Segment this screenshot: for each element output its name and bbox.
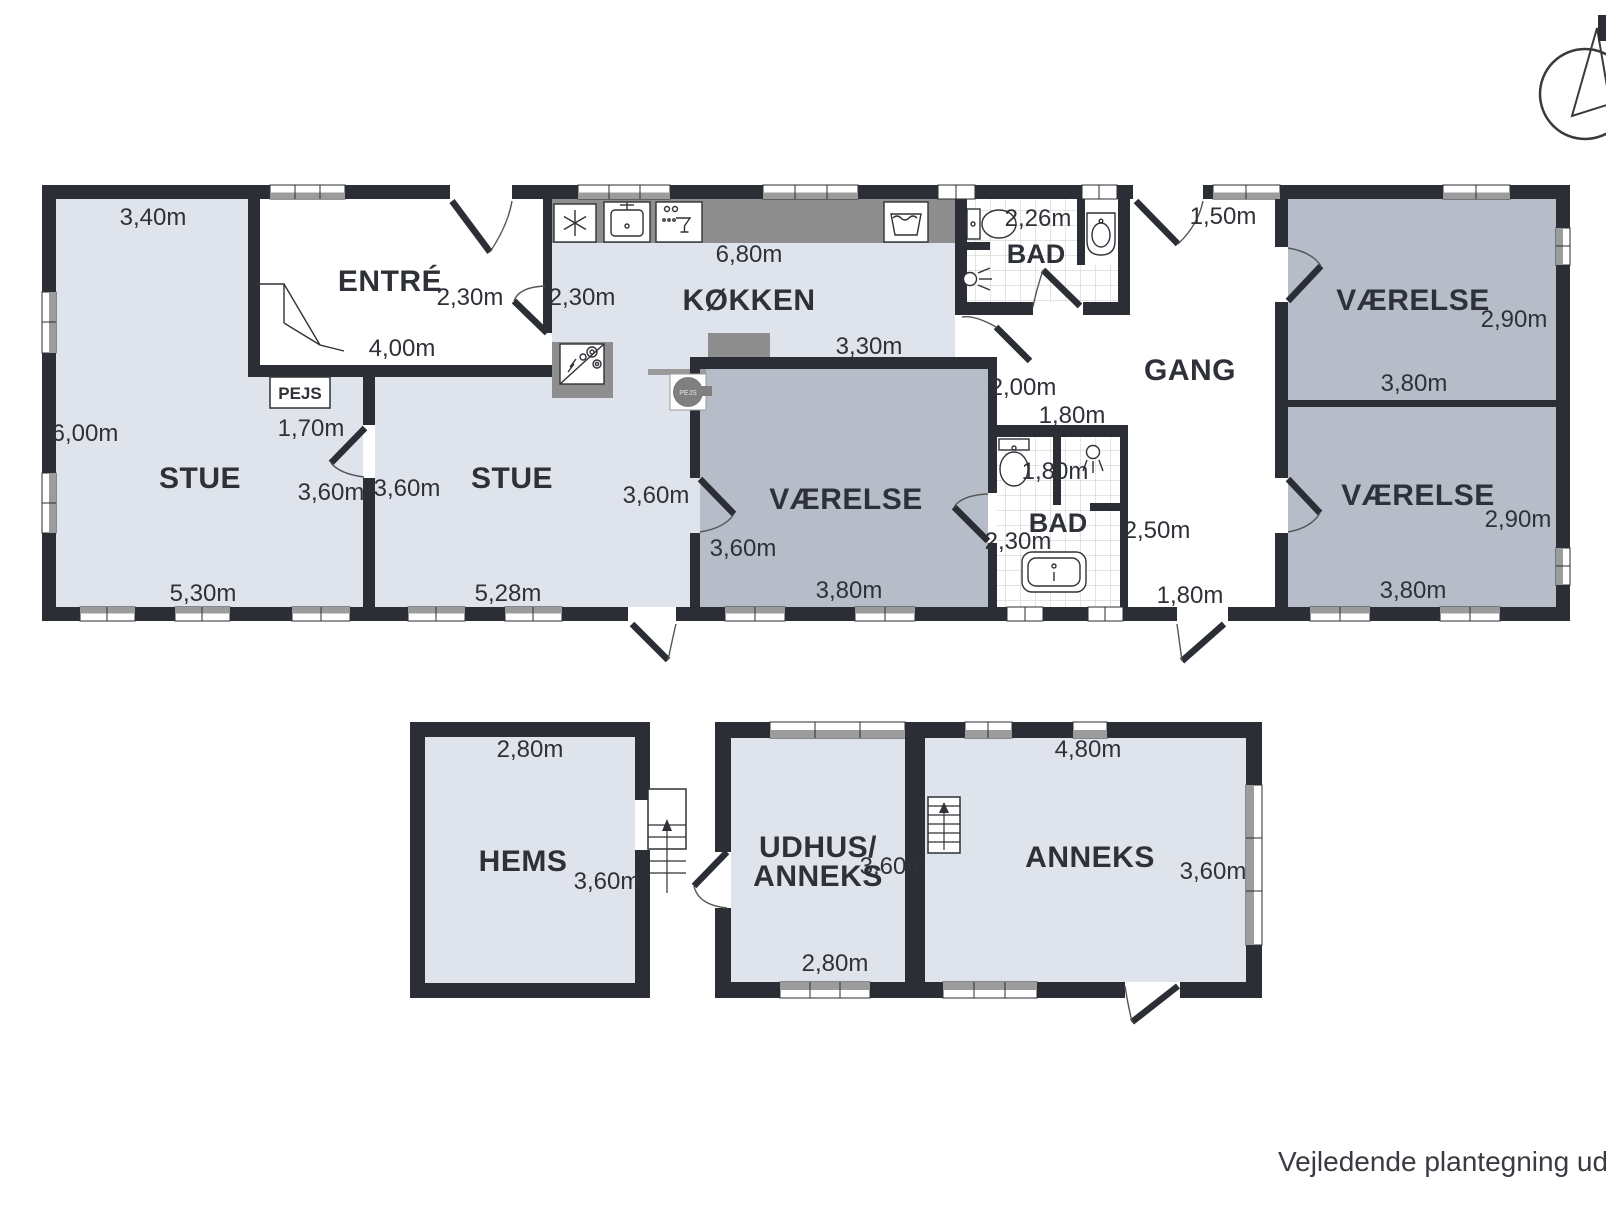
label-bad-mid-inner: 1,80m [1022,458,1089,485]
compass-icon [1540,15,1606,139]
label-anneks-top: 4,80m [1055,736,1122,763]
label-gang-door-bottom: 1,80m [1157,582,1224,609]
hems-stairs-icon [648,789,686,893]
label-vaerelse-mid-door-in: 3,60m [710,535,777,562]
label-stue-right-bottom: 5,28m [475,580,542,607]
label-gang-name: GANG [1144,354,1236,387]
bathtub-icon [1022,552,1086,592]
label-hems-name: HEMS [479,845,568,878]
label-bad-top-name: BAD [1007,239,1066,269]
label-stue-left-bottom: 5,30m [170,580,237,607]
label-kokken-name: KØKKEN [682,284,815,317]
label-stue-right-door: 3,60m [374,475,441,502]
freezer-icon [554,204,596,242]
label-stue-left-left: 6,00m [52,420,119,447]
label-entre-bottom: 4,00m [369,335,436,362]
label-vaerelse-se-bottom: 3,80m [1380,577,1447,604]
label-entre-name: ENTRÉ [338,264,442,298]
main-building: PEJS [42,185,1570,661]
udhus-anneks-building: UDHUS/ ANNEKS 3,60m 2,80m 4,80m ANNEKS 3… [694,722,1262,1022]
label-kokken-top: 6,80m [716,241,783,268]
dishwasher-icon [656,202,702,242]
label-stue-right-name: STUE [471,462,553,495]
bathroom-sink-top-icon [1087,213,1115,255]
label-gang-door-top: 1,50m [1190,203,1257,230]
kitchen-sink-icon [604,202,650,242]
label-vaerelse-ne-right: 2,90m [1481,306,1548,333]
label-pejs: PEJS [278,384,321,403]
label-kokken-bottom: 3,30m [836,333,903,360]
label-anneks-right: 3,60m [1180,858,1247,885]
wood-stove-icon: PEJS [670,374,712,410]
hems-building: 2,80m HEMS 3,60m [410,722,686,998]
label-vaerelse-se-right: 2,90m [1485,506,1552,533]
label-stue-left-door: 3,60m [298,479,365,506]
label-udhus-bottom: 2,80m [802,950,869,977]
floorplan-canvas: PEJS [0,0,1606,1205]
label-entre-door: 2,30m [437,284,504,311]
disclaimer-text: Vejledende plantegning uden ans [1278,1146,1606,1177]
label-stue-left-top: 3,40m [120,204,187,231]
compass-north-glyph [1598,15,1606,41]
label-bad-mid-right: 2,50m [1124,517,1191,544]
label-hems-top: 2,80m [497,736,564,763]
floorplan-svg: PEJS [0,0,1606,1205]
label-anneks-name: ANNEKS [1025,841,1155,874]
label-gang-opening: 2,00m [990,374,1057,401]
label-hems-right: 3,60m [574,868,641,895]
label-stue-left-name: STUE [159,462,241,495]
label-vaerelse-se-name: VÆRELSE [1341,479,1495,512]
label-vaerelse-mid-name: VÆRELSE [769,483,923,516]
label-pejs-width: 1,70m [278,415,345,442]
label-bad-top-width: 2,26m [1005,205,1072,232]
label-vaerelse-ne-bottom: 3,80m [1381,370,1448,397]
utility-sink-icon [884,202,928,242]
label-bad-mid-top: 1,80m [1039,402,1106,429]
label-vaerelse-ne-name: VÆRELSE [1336,284,1490,317]
label-bad-mid-door: 2,30m [985,528,1052,555]
stove-icon [560,344,604,384]
label-udhus-height: 3,60m [860,853,927,880]
wood-stove-label: PEJS [679,390,697,397]
label-vaerelse-mid-bottom: 3,80m [816,577,883,604]
anneks-stairs-icon [928,797,960,853]
label-vaerelse-mid-door-out: 3,60m [623,482,690,509]
label-kokken-door: 2,30m [549,284,616,311]
